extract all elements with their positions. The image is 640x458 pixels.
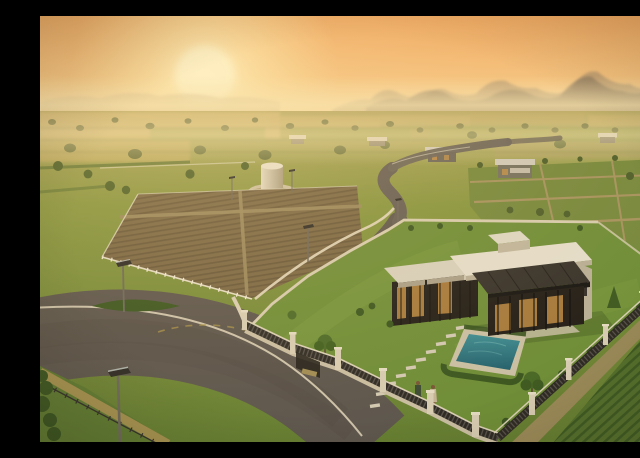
sunset-farmland-aerial-photo: [40, 16, 640, 442]
scene-canvas: [40, 16, 640, 442]
vignette: [40, 16, 640, 442]
